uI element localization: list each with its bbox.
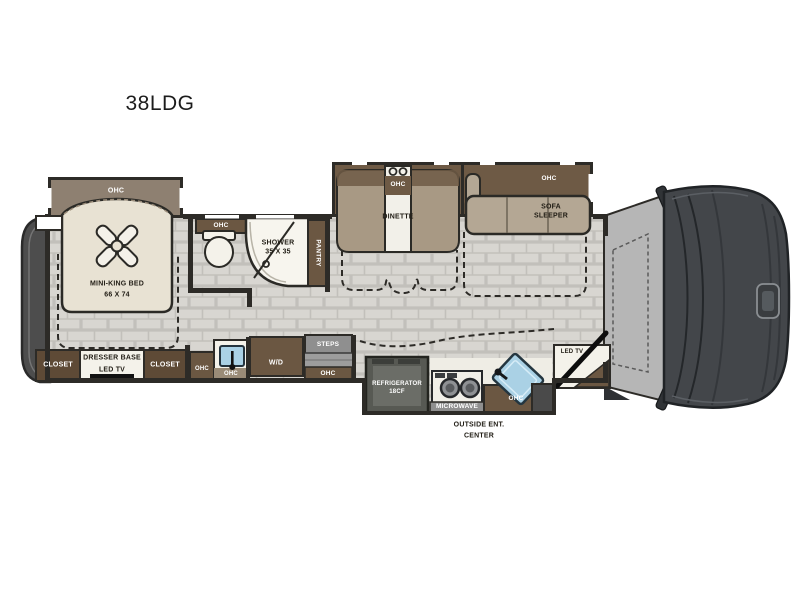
label-outside-line1: OUTSIDE ENT.: [454, 422, 505, 429]
label-dinette-ohc: OHC: [390, 182, 405, 189]
label-closet-left: CLOSET: [43, 362, 73, 369]
label-outside-line2: CENTER: [464, 433, 494, 440]
cockpit-area: [604, 194, 668, 402]
label-dresser-base: DRESSER BASE: [83, 355, 141, 362]
floorplan-page: 38LDG OHC MINI-KING BED 66 X 74 CLOSET D…: [0, 0, 800, 600]
floorplan-title: 38LDG: [125, 92, 194, 116]
label-bedroom-ohc: OHC: [108, 188, 124, 195]
label-fridge-line1: REFRIGERATOR: [372, 381, 422, 387]
label-sofa-line1: SOFA: [541, 204, 561, 211]
label-shower-name: SHOWER: [262, 240, 295, 247]
floorplan-drawing: [0, 0, 800, 600]
label-pantry: PANTRY: [314, 239, 321, 266]
label-hall-ohc: OHC: [195, 366, 209, 372]
label-sofa-ohc: OHC: [541, 176, 556, 183]
label-dresser-tv: LED TV: [99, 367, 125, 374]
label-steps-ohc: OHC: [320, 371, 335, 378]
label-fridge-line2: 18CF: [389, 389, 404, 395]
label-bed-name: MINI-KING BED: [90, 281, 144, 288]
truck-cab: [655, 185, 789, 411]
bath-faucet-icon: [231, 351, 234, 366]
label-kitchen-ohc: OHC: [508, 396, 523, 403]
washer-dryer: [250, 337, 303, 376]
label-bed-size: 66 X 74: [104, 292, 130, 299]
label-microwave: MICROWAVE: [436, 404, 478, 411]
dinette: [337, 166, 459, 252]
cab-emblem-icon: [757, 284, 779, 318]
label-washer-dryer: W/D: [269, 360, 283, 367]
label-sink-ohc: OHC: [224, 371, 238, 377]
label-closet-right: CLOSET: [150, 362, 180, 369]
label-dinette: DINETTE: [382, 214, 413, 221]
label-bath-ohc: OHC: [213, 223, 228, 230]
toilet-icon: [203, 231, 235, 267]
cooktop: [432, 371, 482, 403]
label-sofa-line2: SLEEPER: [534, 213, 568, 220]
label-steps: STEPS: [317, 342, 339, 349]
label-entry-tv: LED TV: [561, 349, 584, 355]
entry-step-well: [532, 384, 554, 412]
label-shower-size: 35 X 35: [265, 249, 291, 256]
